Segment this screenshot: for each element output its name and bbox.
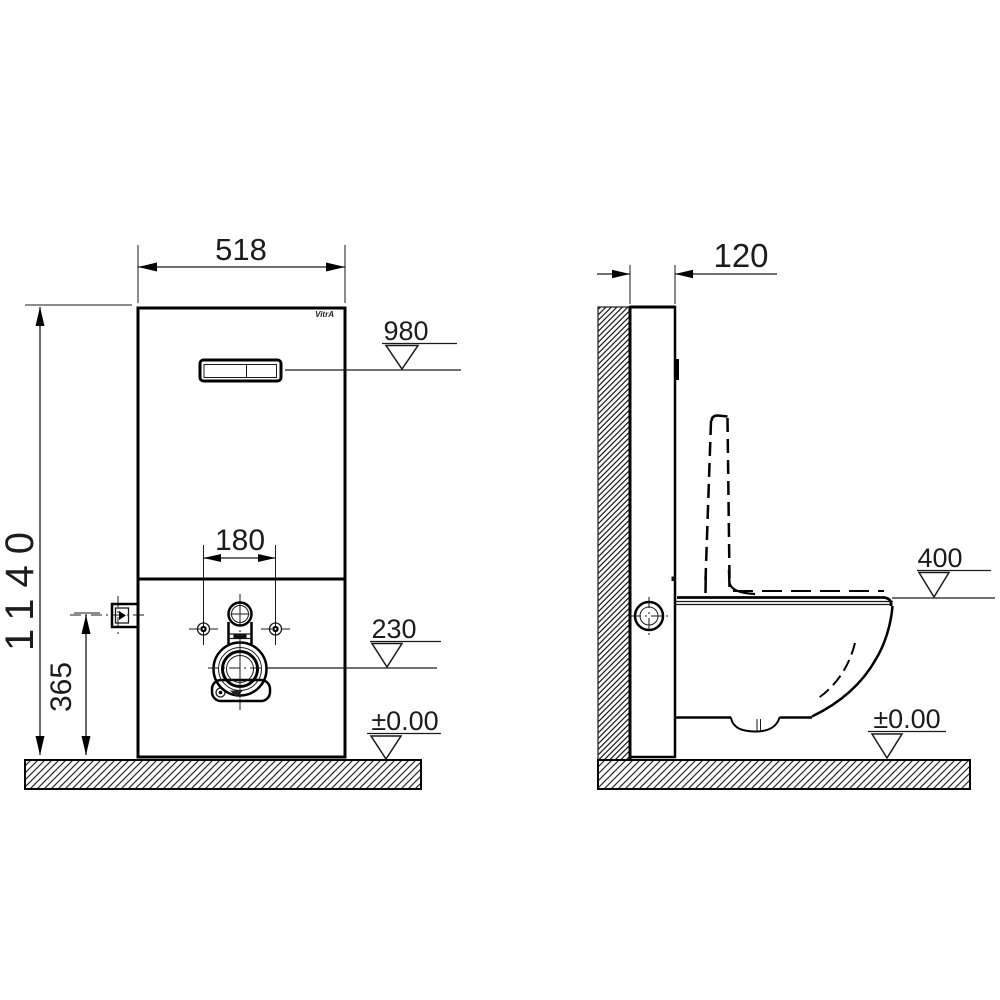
front-view: VitrA 518 1140 <box>0 232 461 789</box>
dim-depth-label: 120 <box>713 237 768 274</box>
dim-height-label: 1140 <box>0 521 42 651</box>
drawing-page: VitrA 518 1140 <box>0 0 1000 1000</box>
dim-bolt-spacing-label: 180 <box>215 524 265 557</box>
outlet-circle <box>208 640 292 698</box>
toilet-bowl-side <box>675 591 893 732</box>
upper-connector-circle <box>229 603 252 626</box>
outlet-pipe-assembly <box>208 594 292 710</box>
level-400-label: 400 <box>917 543 962 573</box>
dimension-width-518: 518 <box>138 232 345 303</box>
floor-side <box>598 760 970 789</box>
cistern-panel-side <box>630 307 679 757</box>
level-zero-side: ±0.00 <box>868 704 946 758</box>
flush-plate <box>200 360 281 381</box>
wall <box>598 307 630 760</box>
level-zero-front: ±0.00 <box>367 706 441 759</box>
level-980-label: 980 <box>383 316 428 346</box>
toilet-lid-open <box>706 416 756 595</box>
technical-drawing: VitrA 518 1140 <box>0 0 1000 1000</box>
level-980: 980 <box>285 316 461 370</box>
level-230-label: 230 <box>371 614 416 644</box>
bowl-outer-profile <box>812 606 893 717</box>
floor-front <box>25 760 421 789</box>
side-view: 120 <box>597 237 995 789</box>
dimension-bolt-spacing-180: 180 <box>204 524 276 645</box>
level-230: 230 <box>267 614 441 668</box>
drain-detail <box>731 718 780 732</box>
dim-width-label: 518 <box>215 232 267 267</box>
level-zero-side-label: ±0.00 <box>873 704 940 734</box>
level-400: 400 <box>892 543 995 598</box>
dimension-depth-120: 120 <box>597 237 777 304</box>
brand-logo: VitrA <box>315 310 334 319</box>
dim-inlet-height-label: 365 <box>45 662 78 712</box>
flush-plate-side <box>675 359 679 380</box>
dimension-inlet-height-365: 365 <box>45 613 100 755</box>
water-inlet-fixture <box>70 596 146 634</box>
supply-connector-circle <box>630 597 668 636</box>
level-zero-front-label: ±0.00 <box>371 706 438 736</box>
